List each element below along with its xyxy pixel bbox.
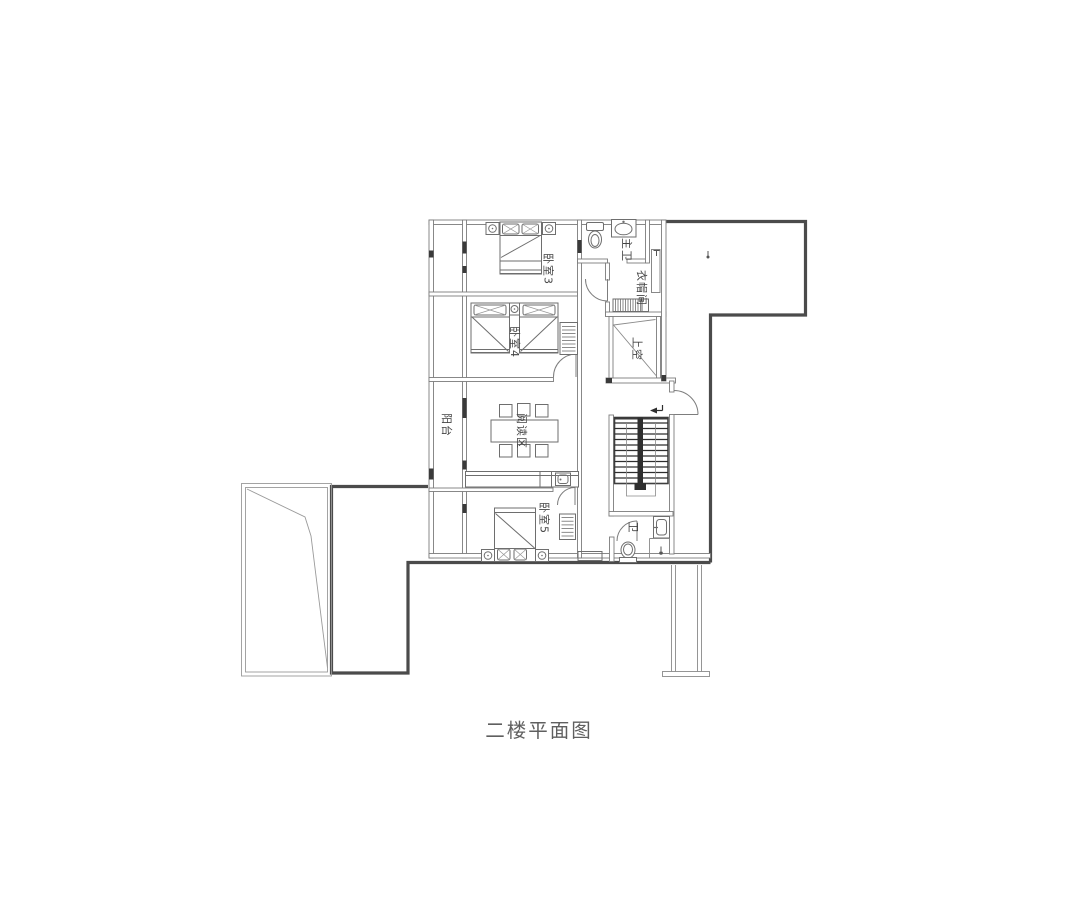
staircase [615,405,669,496]
exterior-column [663,565,710,677]
room-label-bath: 卫 [627,522,640,534]
room-label-cloakroom: 衣帽间 [635,270,649,306]
bedroom5-wardrobe [560,514,576,540]
room-label-void: 上空 [631,337,645,361]
bedroom4-door [554,354,577,377]
counter [466,472,579,488]
room-label-reading: 阅读区 [515,413,529,449]
suite-door [586,279,608,301]
sink-icon [612,220,637,238]
floor-plan-svg: 卧室3 卧室4 主卫 衣帽间 上空 阳台 阅读区 卧室5 卫 二楼平面图 [0,0,1080,921]
room-label-bedroom3: 卧室3 [542,253,556,285]
toilet-icon [587,223,604,249]
walls [429,220,711,562]
stair-up-arrow [650,405,663,414]
bedroom5-door [558,488,576,506]
room-label-master-bath: 主卫 [620,238,633,262]
room-label-balcony: 阳台 [440,413,454,437]
bedroom4-beds [471,303,578,355]
floor-plan-page: 卧室3 卧室4 主卫 衣帽间 上空 阳台 阅读区 卧室5 卫 二楼平面图 [0,0,1080,921]
toilet-icon [620,542,637,563]
room-label-bedroom4: 卧室4 [508,326,522,358]
plan-title: 二楼平面图 [485,719,593,742]
bedroom4-wardrobe [560,323,578,355]
terrace-door [674,391,698,415]
sink-icon [654,517,670,539]
roof-outline-right [666,222,806,563]
shower-icon [659,547,663,555]
left-terrace [242,484,332,677]
room-label-bedroom5: 卧室5 [538,502,552,534]
doors [554,279,699,541]
